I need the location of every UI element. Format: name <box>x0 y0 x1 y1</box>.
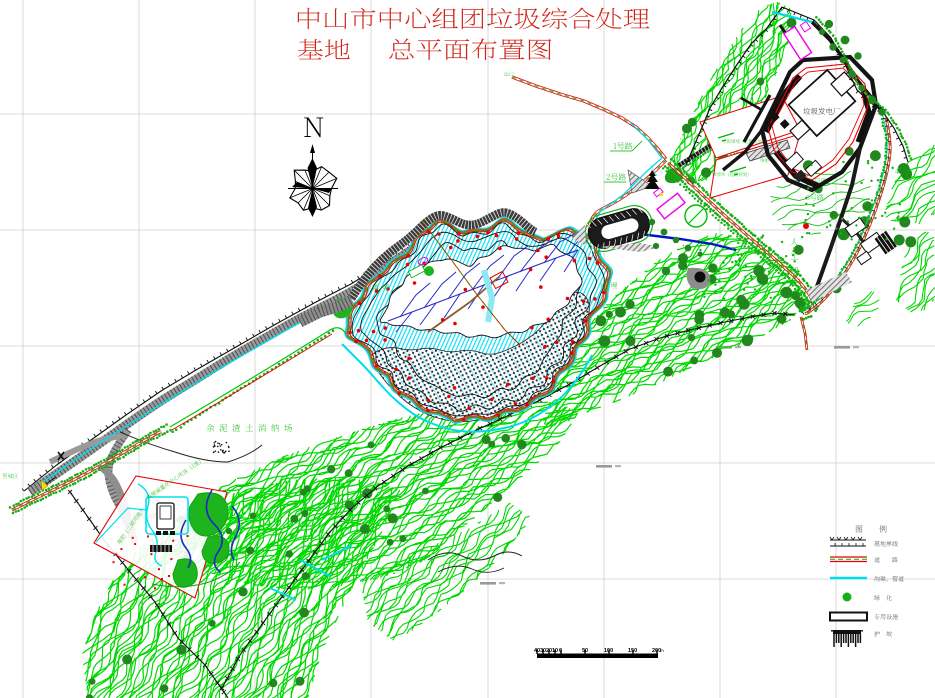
svg-text:0: 0 <box>559 648 562 654</box>
svg-text:50: 50 <box>582 648 588 654</box>
svg-text:m: m <box>660 648 664 653</box>
svg-text:150: 150 <box>628 648 637 654</box>
svg-text:100: 100 <box>604 648 613 654</box>
svg-text:10: 10 <box>552 648 558 654</box>
